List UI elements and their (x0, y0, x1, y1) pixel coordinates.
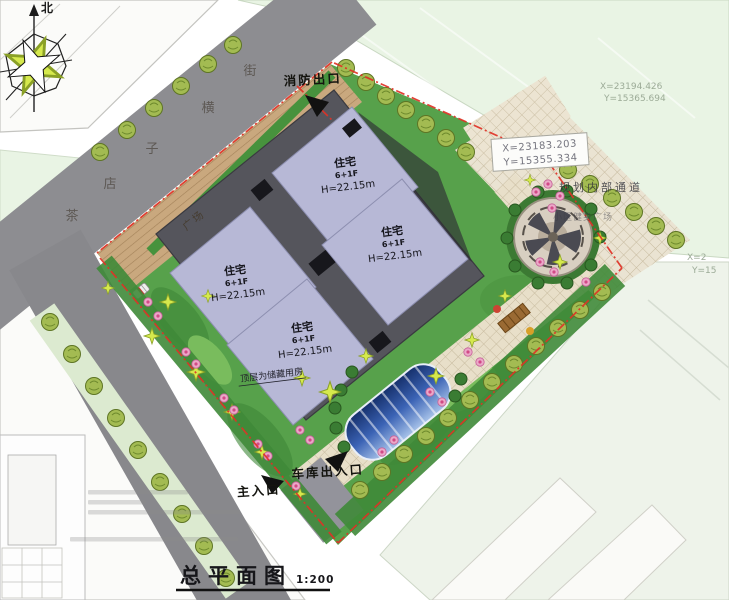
street-char-jie: 街 (243, 64, 256, 79)
survey-point-boxed: X=23183.203 Y=15355.334 (491, 133, 589, 172)
building-east-name: 住宅 (380, 223, 404, 240)
fire-exit-label-group: 消防出口 (283, 70, 342, 88)
building-north-name: 住宅 (333, 154, 357, 171)
main-entrance-label-group: 主入口 (236, 482, 280, 500)
fire-exit-label: 消防出口 (283, 70, 342, 88)
main-entrance-label: 主入口 (236, 482, 280, 500)
internal-road-label: 规划内部通道 (559, 180, 643, 194)
street-char-zi: 子 (145, 142, 158, 157)
drawing-scale: 1:200 (296, 574, 334, 586)
street-char-cha: 茶 (65, 208, 78, 224)
site-plan-drawing: 北 X=23183.203 Y=15355.334 X=23194.426 Y=… (0, 0, 729, 600)
survey-y-faint: Y=15365.694 (603, 94, 666, 104)
north-label: 北 (41, 0, 53, 15)
drawing-title: 总平面图 (180, 564, 292, 588)
site-plan-canvas: 北 X=23183.203 Y=15355.334 X=23194.426 Y=… (0, 0, 729, 600)
street-char-dian: 店 (103, 177, 116, 192)
building-south-name: 住宅 (290, 319, 314, 336)
building-west-name: 住宅 (223, 262, 247, 279)
survey-y-edge: Y=15 (691, 266, 717, 276)
street-char-heng: 横 (201, 101, 214, 116)
fitness-plaza-label: 小区健身广场 (553, 211, 613, 223)
survey-x-faint: X=23194.426 (600, 82, 663, 92)
survey-x-edge: X=2 (687, 253, 706, 263)
